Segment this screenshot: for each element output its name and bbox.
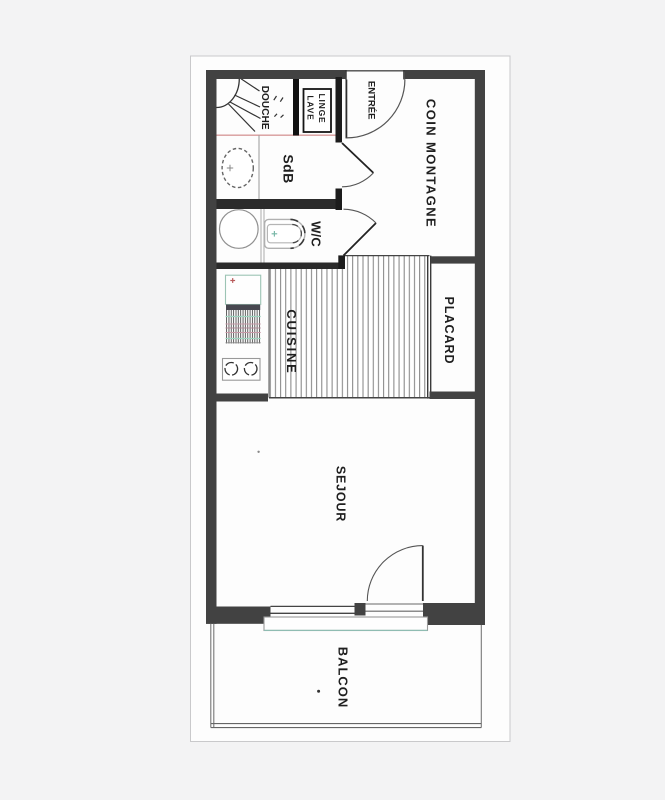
svg-text:SEJOUR: SEJOUR <box>334 466 348 522</box>
svg-text:BALCON: BALCON <box>336 647 351 709</box>
svg-text:COIN MONTAGNE: COIN MONTAGNE <box>424 99 439 228</box>
svg-text:LINGE: LINGE <box>317 94 327 124</box>
svg-text:CUISINE: CUISINE <box>284 309 299 374</box>
svg-text:LAVE: LAVE <box>305 95 315 120</box>
svg-text:W/C: W/C <box>309 221 324 247</box>
svg-text:DOUCHE: DOUCHE <box>259 86 270 130</box>
svg-text:PLACARD: PLACARD <box>442 296 456 364</box>
svg-text:SdB: SdB <box>281 154 297 183</box>
svg-text:ENTRÉE: ENTRÉE <box>365 81 376 120</box>
